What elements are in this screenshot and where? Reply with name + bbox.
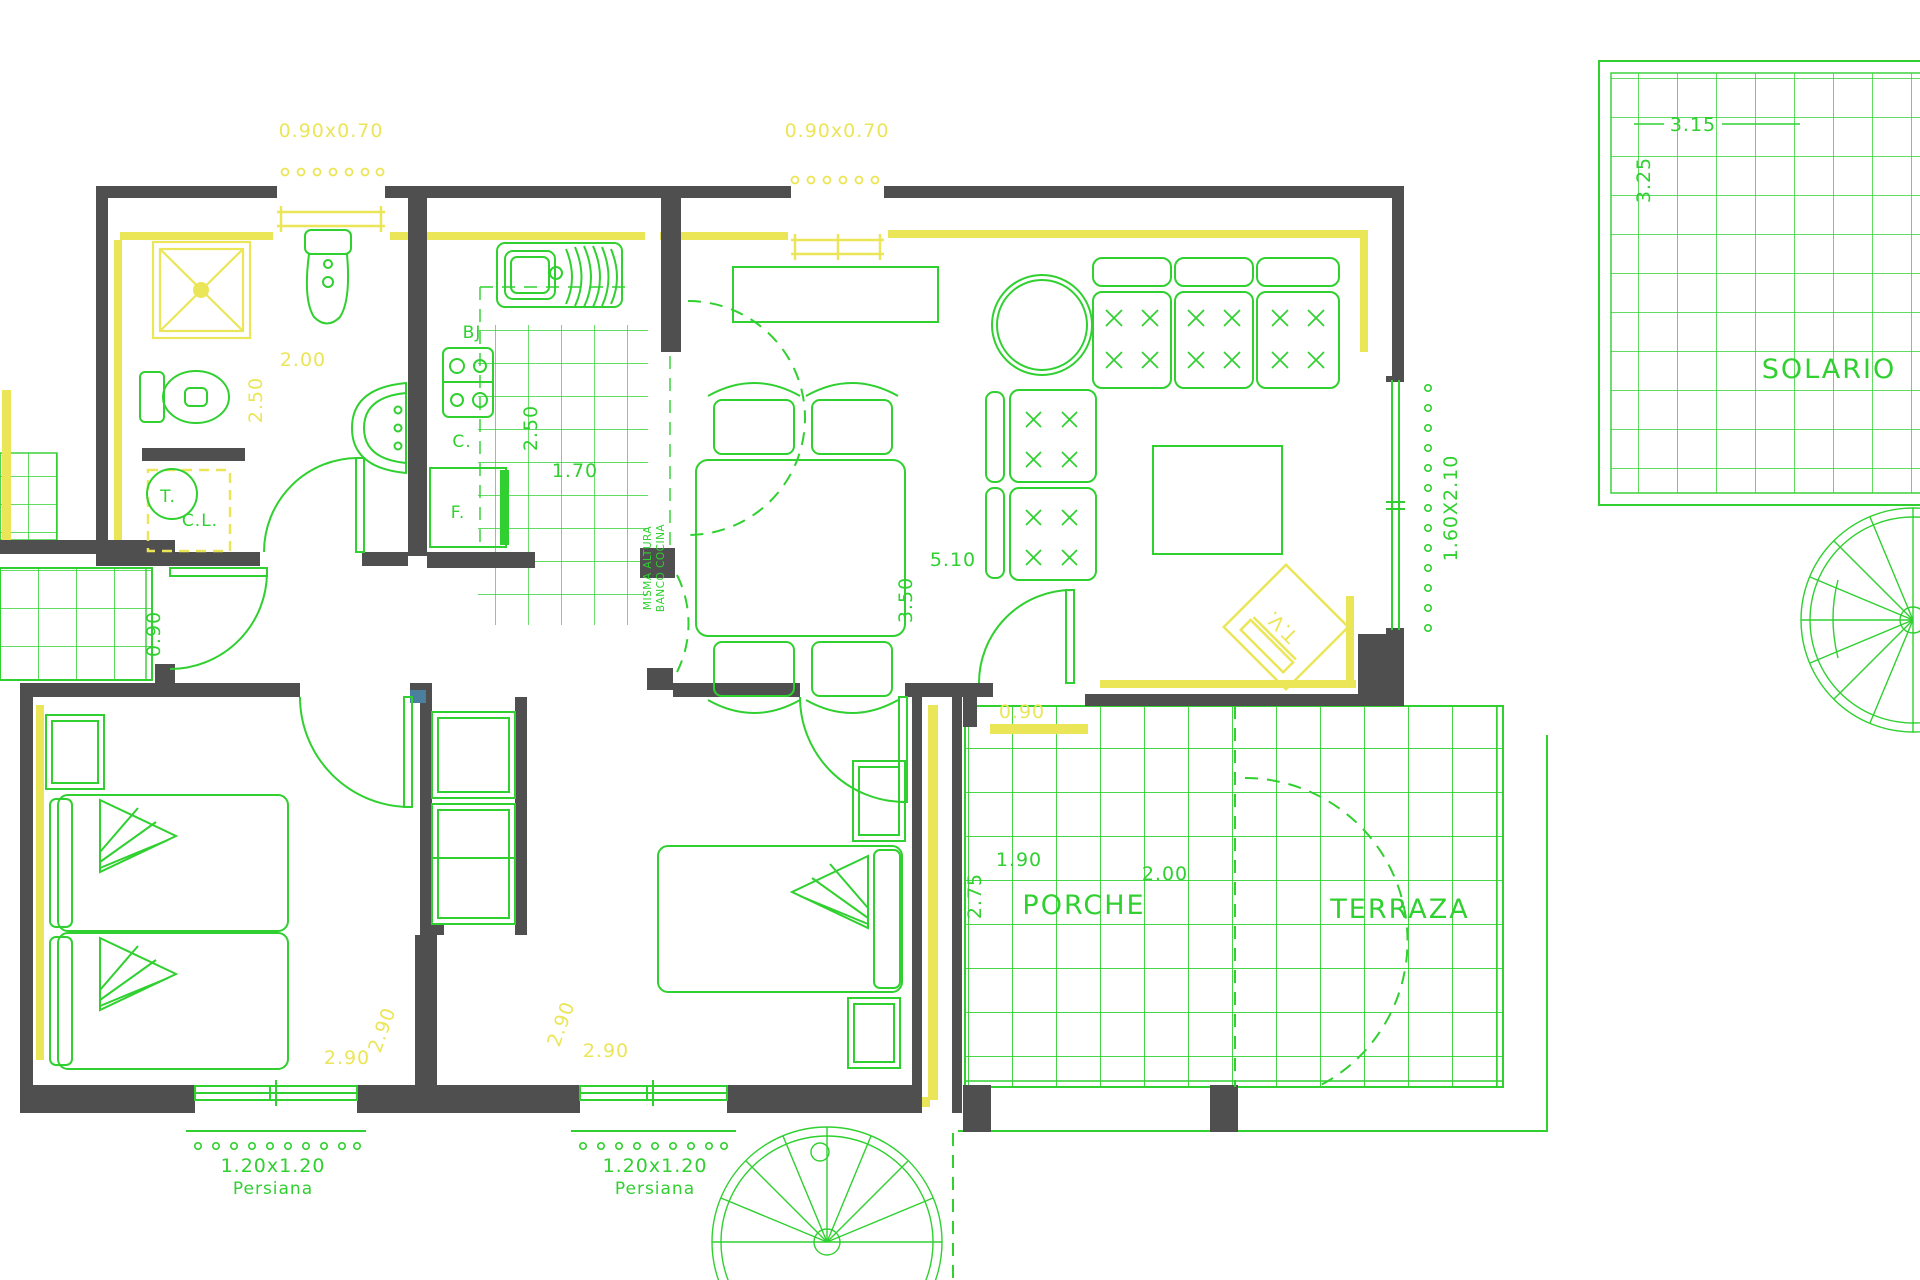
window-top-right: 0.90x0.70 <box>785 120 890 260</box>
hall-closet <box>432 712 515 924</box>
bedroom1-furniture <box>46 715 288 1069</box>
solario-dim-height: 3.25 <box>1633 157 1655 203</box>
heater-label: T. <box>159 487 176 507</box>
floor-plan-drawing: 0.90x0.70 0.90x0.70 1.60 <box>0 0 1920 1280</box>
window-top-left: 0.90x0.70 <box>277 120 385 232</box>
living-dim-width: 5.10 <box>930 549 976 571</box>
kitchen-note-line1: MISMA ALTURA <box>642 526 654 610</box>
sofa-three-seat <box>1093 258 1339 388</box>
spiral-stair-right <box>1801 508 1920 732</box>
tv-label: T.V. <box>1261 606 1303 648</box>
kitchen-sink-unit <box>497 243 622 307</box>
bidet <box>305 230 351 324</box>
sofa-cushion-x-marks <box>1106 310 1324 368</box>
window-bedroom2: 1.20x1.20 Persiana <box>571 1080 736 1199</box>
bathroom-dim-width: 2.00 <box>280 349 326 371</box>
solario-tiles <box>1599 61 1920 505</box>
round-side-table <box>992 275 1092 375</box>
window-bedroom2-label: 1.20x1.20 <box>603 1155 708 1177</box>
terraza-name: TERRAZA <box>1329 894 1469 925</box>
window-top-right-label: 0.90x0.70 <box>785 120 890 142</box>
coffee-table <box>1153 446 1282 554</box>
sideboard <box>733 267 938 322</box>
porch-door: 0.90 <box>979 590 1074 723</box>
window-bedroom1: 1.20x1.20 Persiana <box>186 1080 366 1199</box>
bathroom-dim-height: 2.50 <box>245 377 267 423</box>
kitchen-stove-label: C. <box>452 432 471 452</box>
porch-dim-height: 2.75 <box>964 873 986 919</box>
washbasin <box>352 383 406 473</box>
dining-table-set <box>696 383 905 713</box>
solario-dim-width: 3.15 <box>1670 114 1716 136</box>
porch-door-dim: 0.90 <box>999 701 1045 723</box>
kitchen-dim-depth: 2.50 <box>520 405 542 451</box>
terraza-dim: 2.00 <box>1142 863 1188 885</box>
floor-plan-page: 0.90x0.70 0.90x0.70 1.60 <box>0 0 1920 1280</box>
kitchen-bj-label: BJ <box>463 323 482 343</box>
bedroom1-dim: 2.90 <box>324 1047 370 1069</box>
kitchen-note-line2: BANCO COCINA <box>655 524 667 613</box>
porch-dim-width: 1.90 <box>996 849 1042 871</box>
window-living-right: 1.60X2.10 <box>1386 380 1462 631</box>
bedroom2-furniture <box>658 761 905 1068</box>
living-dim-height: 3.50 <box>895 577 917 623</box>
solario-name: SOLARIO <box>1762 354 1897 385</box>
porch-name: PORCHE <box>1022 890 1145 921</box>
sofa-two-seat <box>986 390 1096 580</box>
bedroom2-dim: 2.90 <box>583 1040 629 1062</box>
window-bedroom1-label: 1.20x1.20 <box>221 1155 326 1177</box>
window-bedroom1-sublabel: Persiana <box>233 1179 313 1199</box>
bathroom-door <box>264 458 364 552</box>
kitchen-fridge-label: F. <box>451 503 465 523</box>
spiral-stair-bottom <box>712 1127 942 1280</box>
entry-door: 0.90 <box>143 568 267 669</box>
hall-living-opening-arc <box>677 575 689 672</box>
toilet <box>140 371 229 423</box>
kitchen-dim-width: 1.70 <box>552 460 598 482</box>
entry-door-dim: 0.90 <box>143 611 165 657</box>
closet-cl-label: C.L. <box>182 511 218 531</box>
window-bedroom2-sublabel: Persiana <box>615 1179 695 1199</box>
kitchen-living-opening-arc <box>688 301 805 535</box>
tv-unit: T.V. <box>1224 565 1348 689</box>
entry-porch-tiles <box>0 568 152 680</box>
bedroom1-door <box>300 697 412 807</box>
window-top-left-label: 0.90x0.70 <box>279 120 384 142</box>
closet-cl: T. C.L. <box>147 469 230 551</box>
shower-tray <box>153 242 250 338</box>
window-living-right-label: 1.60X2.10 <box>1440 455 1462 562</box>
bedroom2-dim-rotated: 2.90 <box>543 998 580 1049</box>
